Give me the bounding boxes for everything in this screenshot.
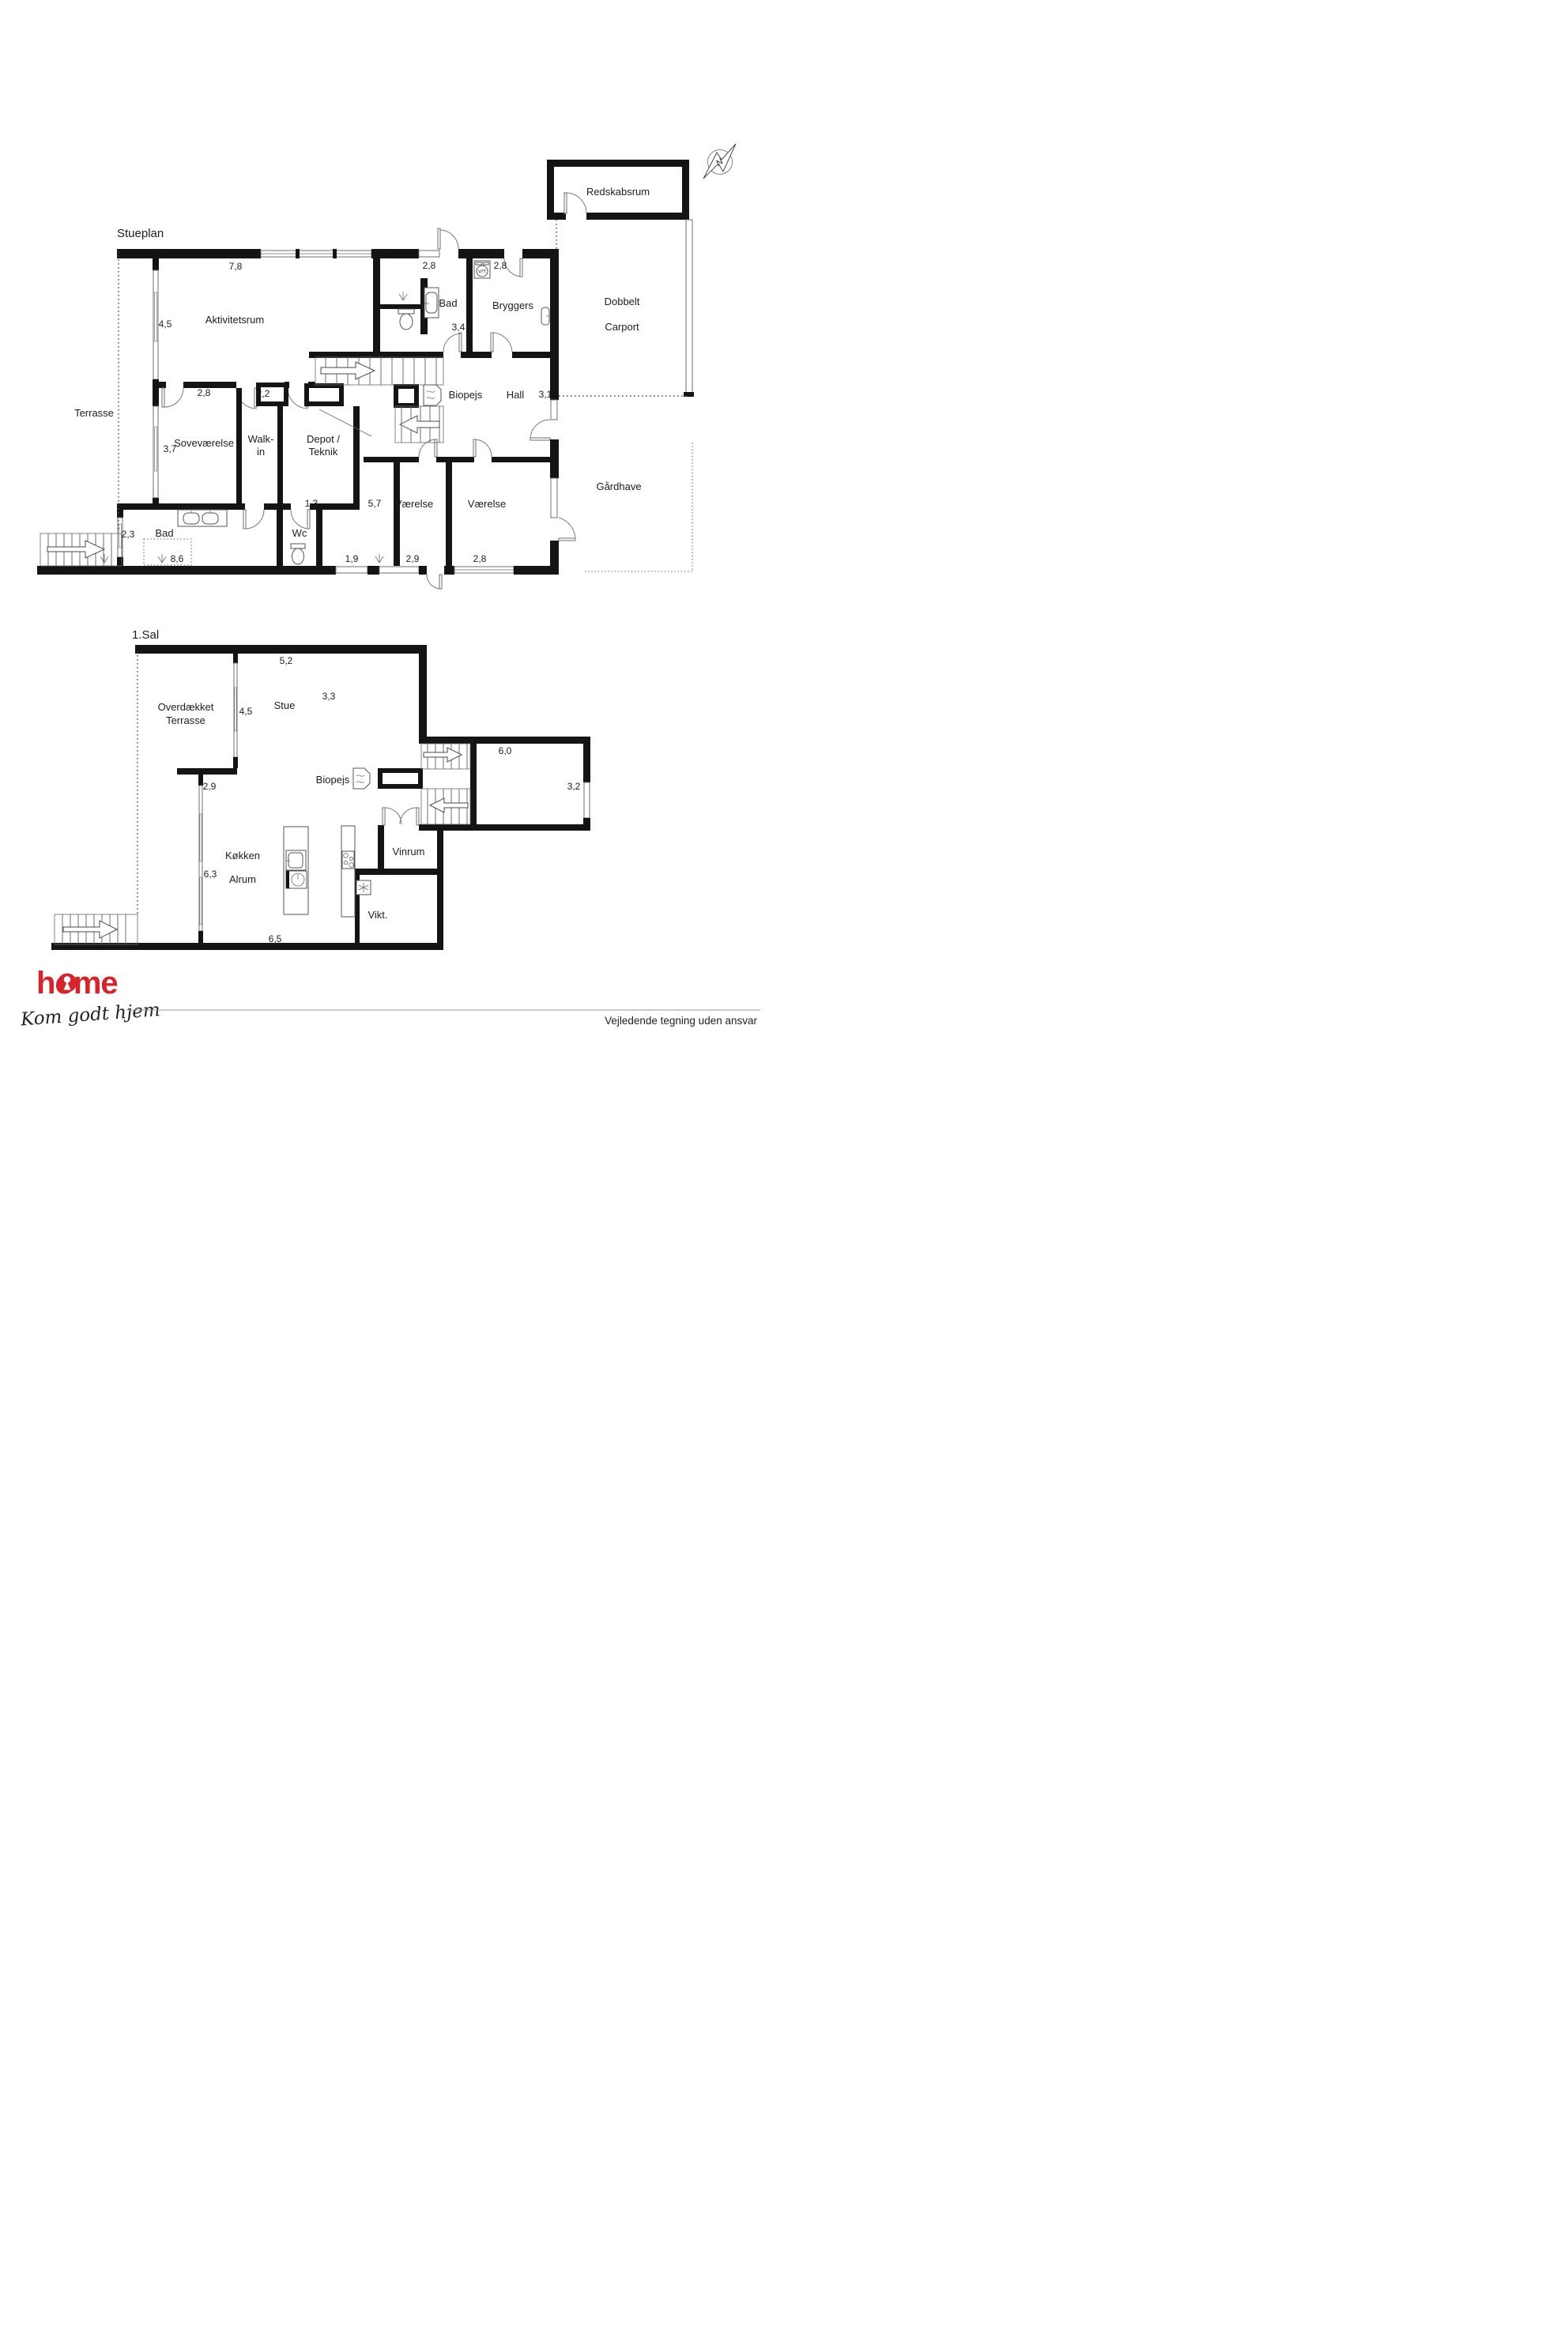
meas-57: 5,7 <box>368 498 382 509</box>
meas-63: 6,3 <box>204 869 217 880</box>
meas-45-1sal: 4,5 <box>239 706 253 717</box>
room-label-vaerelse2: Værelse <box>468 498 506 510</box>
shower-area <box>144 539 191 565</box>
bryggers-sink-icon <box>541 307 549 325</box>
logo-tagline: Kom godt hjem <box>19 1000 160 1030</box>
stair-up-arrow <box>424 748 462 762</box>
room-label-depot-1: Depot / <box>307 433 340 445</box>
stair-down-arrow <box>400 416 439 433</box>
meas-28-bryggers: 2,8 <box>494 260 507 271</box>
meas-37: 3,7 <box>164 443 177 454</box>
door-leaf <box>564 193 567 213</box>
firstfloor-exterior-stairs <box>55 914 138 944</box>
room-label-redskabsrum: Redskabsrum <box>586 186 650 198</box>
stueplan-title: Stueplan <box>117 227 164 240</box>
meas-45: 4,5 <box>159 318 172 330</box>
meas-28-bad: 2,8 <box>423 260 436 271</box>
room-label-walkin-1: Walk- <box>248 433 274 445</box>
gaardhave-boundary <box>585 443 692 571</box>
room-label-vaerelse1: Værelse <box>395 498 433 510</box>
drain-icon <box>399 292 407 300</box>
meas-32: 3,2 <box>567 781 581 792</box>
bad-top-sink-icon <box>424 288 439 318</box>
room-label-hall: Hall <box>507 389 525 401</box>
fireplace-icon-firstfloor <box>353 768 370 789</box>
carport-boundary <box>556 220 694 397</box>
meas-13: 1,3 <box>305 498 318 509</box>
wc-toilet-icon <box>291 544 305 564</box>
room-label-biopejs-1sal: Biopejs <box>316 774 350 786</box>
room-label-terrasse: Terrasse <box>74 407 114 419</box>
room-label-bad-top: Bad <box>439 297 457 309</box>
meas-65: 6,5 <box>269 933 282 944</box>
floorplan-canvas: N Stueplan Redskabsrum Dobbelt Carport G… <box>0 0 784 1176</box>
meas-19: 1,9 <box>345 553 359 564</box>
room-label-carport-2: Carport <box>605 321 639 333</box>
firstfloor-title: 1.Sal <box>132 628 159 642</box>
washing-machine-icon: V/T <box>474 261 490 278</box>
room-label-vikt: Vikt. <box>367 909 387 921</box>
bad-top-toilet-icon <box>398 309 414 330</box>
bad-bottom-double-sink-icon <box>178 510 227 526</box>
meas-78: 7,8 <box>229 261 243 272</box>
kitchen-island <box>284 827 308 914</box>
room-label-alrum: Alrum <box>229 873 256 885</box>
room-label-sovevaerelse: Soveværelse <box>174 437 234 449</box>
meas-22: 2,2 <box>257 388 270 399</box>
fireplace-icon-stueplan <box>424 385 441 405</box>
room-label-bryggers: Bryggers <box>492 300 534 311</box>
room-label-carport-1: Dobbelt <box>605 296 640 307</box>
meas-86: 8,6 <box>171 553 184 564</box>
logo-text: home <box>36 966 118 1001</box>
stueplan-exterior-stairs <box>40 533 122 566</box>
compass-icon: N <box>703 144 736 179</box>
drain-icon <box>375 554 383 563</box>
drain-icon <box>158 554 166 563</box>
meas-28-sove: 2,8 <box>198 387 211 398</box>
meas-28-vaerelse: 2,8 <box>473 553 487 564</box>
room-label-biopejs-st: Biopejs <box>449 389 483 401</box>
firstfloor-walls <box>51 645 590 950</box>
room-label-walkin-2: in <box>257 446 265 458</box>
meas-31: 3,1 <box>539 389 552 400</box>
room-label-koekken: Køkken <box>225 850 260 861</box>
room-label-bad-bottom: Bad <box>155 527 173 539</box>
room-label-overdaekket-2: Terrasse <box>166 714 205 726</box>
room-label-stue: Stue <box>274 699 296 711</box>
room-label-wc: Wc <box>292 527 307 539</box>
meas-29: 2,9 <box>406 553 420 564</box>
meas-33: 3,3 <box>322 691 336 702</box>
room-label-gaardhave: Gårdhave <box>596 481 641 492</box>
room-label-overdaekket-1: Overdækket <box>158 701 214 713</box>
room-label-depot-2: Teknik <box>309 446 338 458</box>
meas-29-1sal: 2,9 <box>203 781 217 792</box>
room-label-vinrum: Vinrum <box>393 846 425 857</box>
firstfloor-void-box <box>378 768 423 789</box>
disclaimer-text: Vejledende tegning uden ansvar <box>605 1015 757 1027</box>
meas-23: 2,3 <box>122 529 135 540</box>
meas-34: 3,4 <box>452 322 465 333</box>
drain-icon <box>100 554 108 563</box>
washer-label: V/T <box>478 269 486 275</box>
home-logo: home <box>36 966 118 1001</box>
kitchen-counter <box>341 826 355 917</box>
room-label-aktivitetsrum: Aktivitetsrum <box>205 314 264 326</box>
meas-52: 5,2 <box>280 655 293 666</box>
meas-60: 6,0 <box>499 745 512 756</box>
freezer-icon <box>356 880 371 895</box>
firstfloor-staircase <box>421 744 470 824</box>
